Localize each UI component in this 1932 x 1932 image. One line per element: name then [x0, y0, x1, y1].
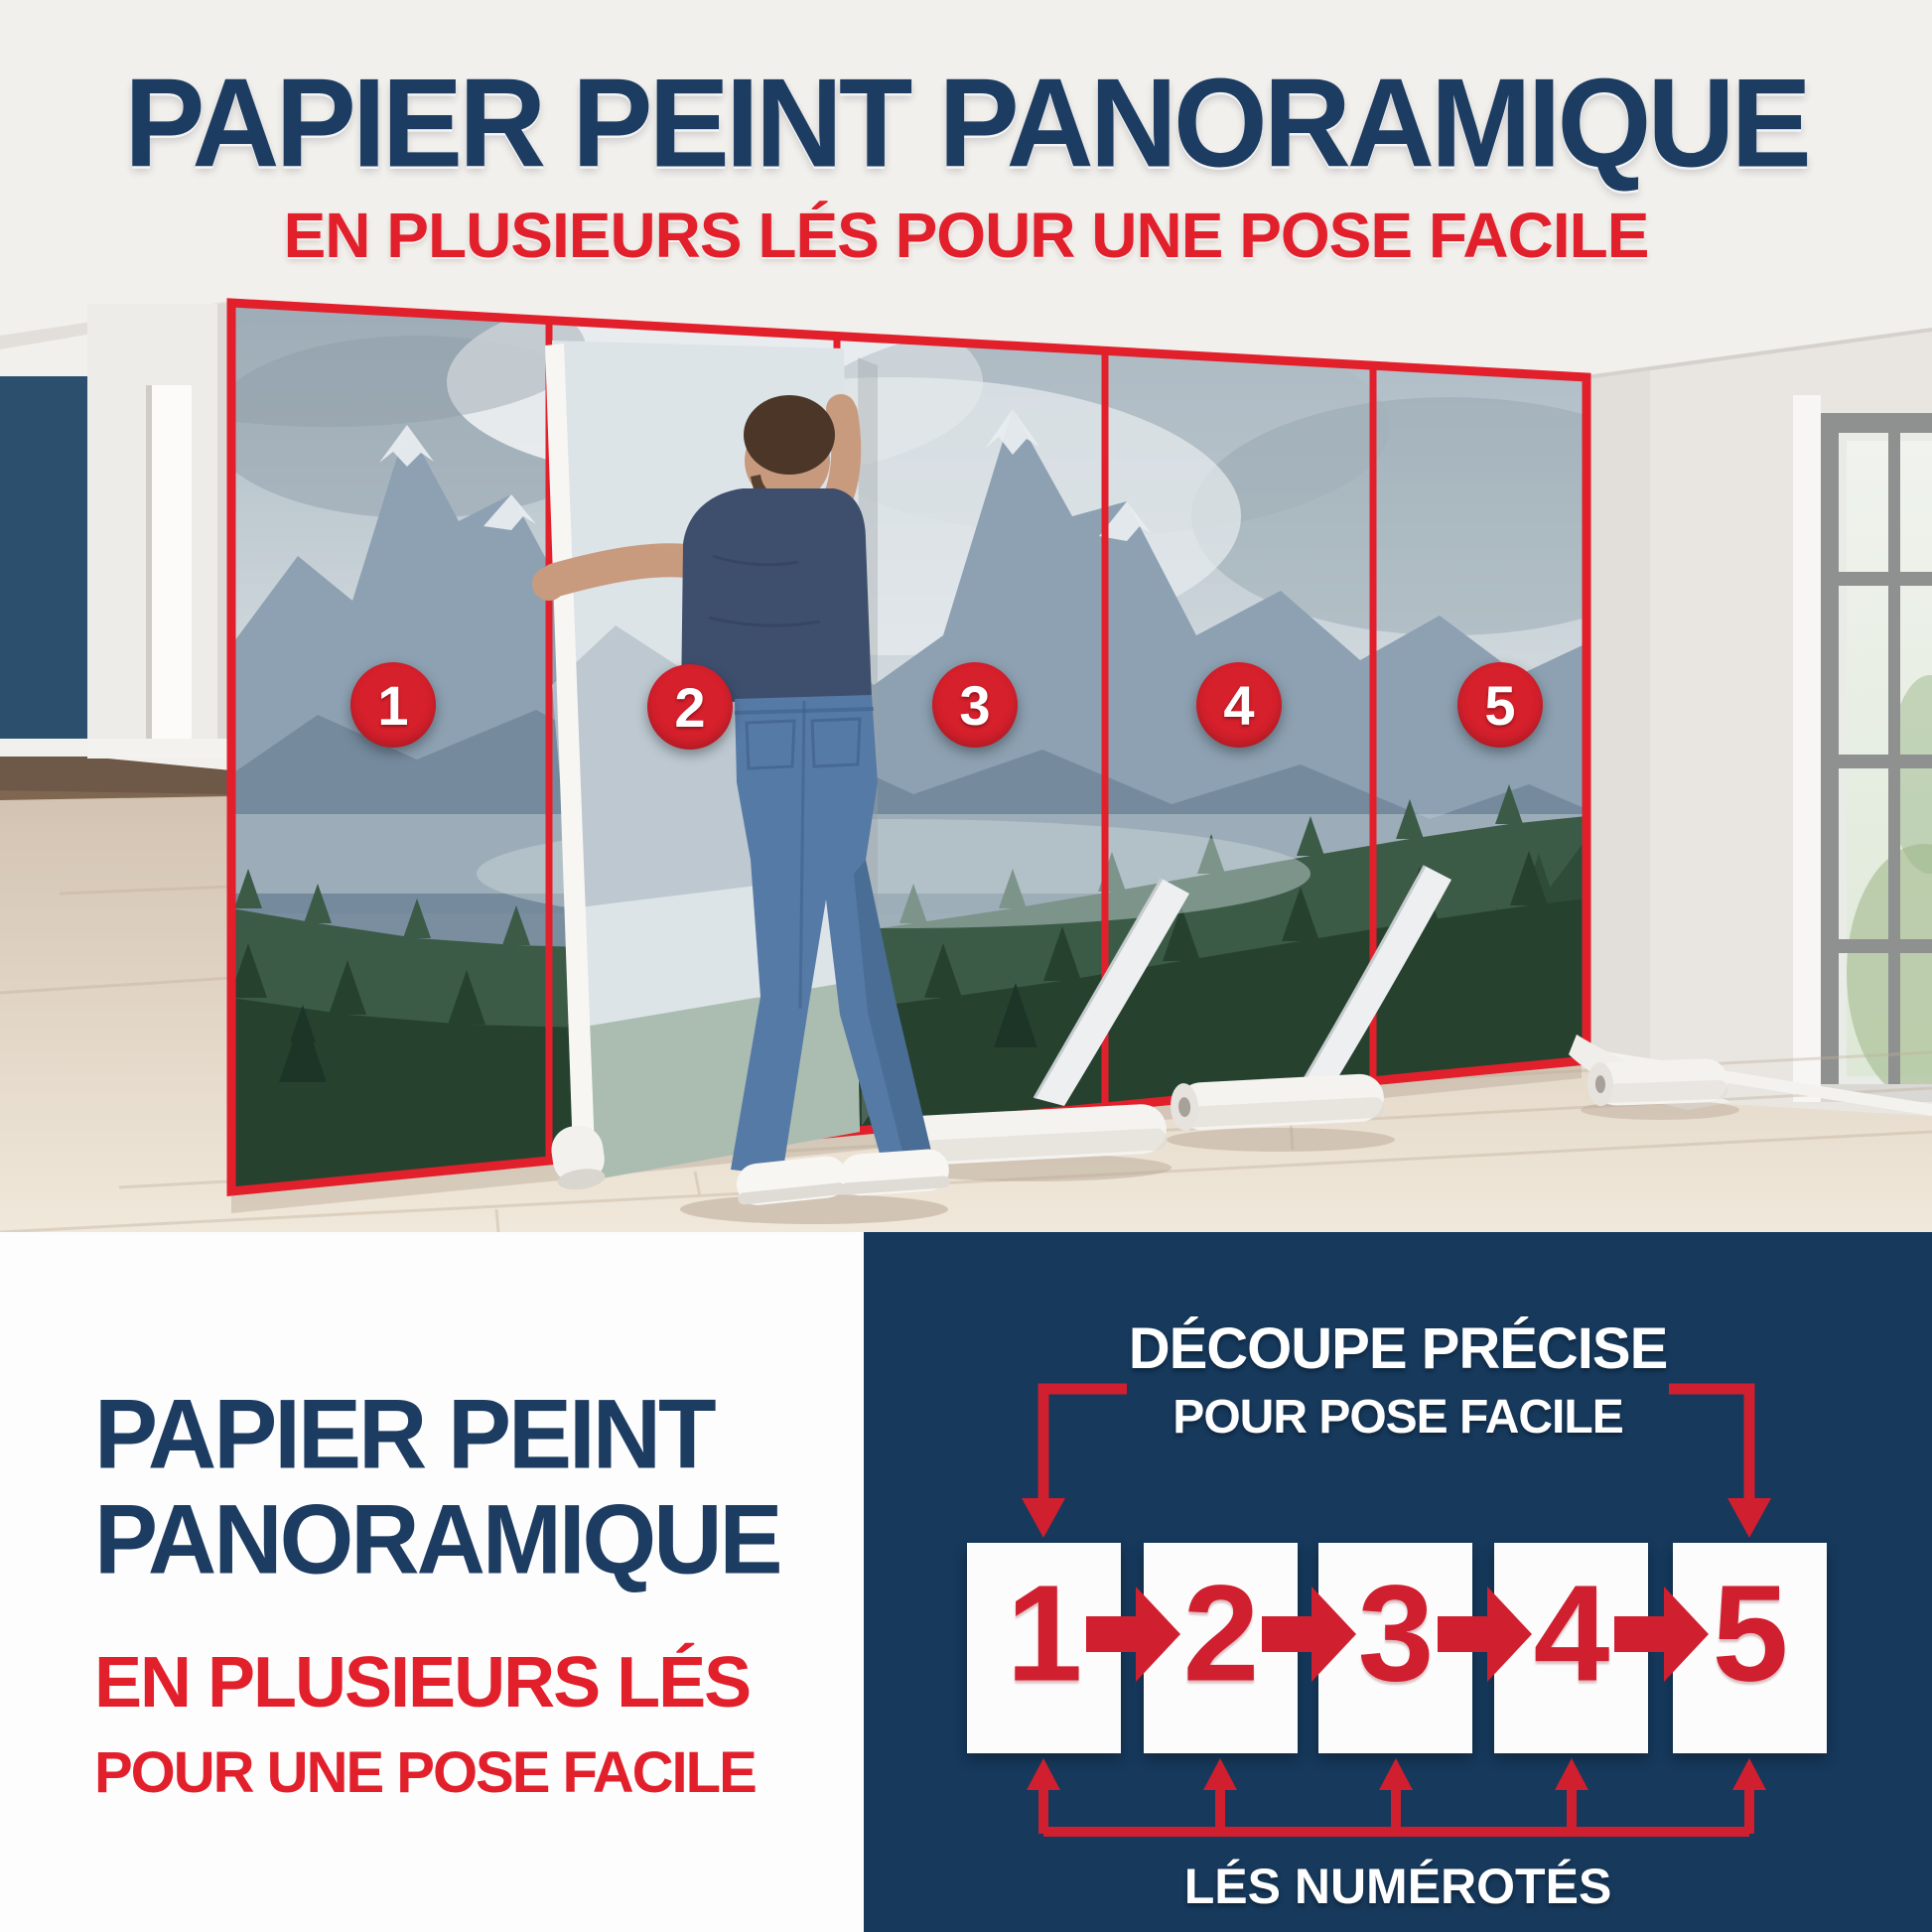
photo-section: PAPIER PEINT PANORAMIQUE EN PLUSIEURS LÉ… — [0, 0, 1932, 1232]
info-subtitle-line1: EN PLUSIEURS LÉS — [94, 1642, 864, 1724]
left-hallway — [0, 301, 231, 804]
strip-number-1: 1 — [1007, 1556, 1083, 1714]
panel-marker-4: 4 — [1196, 662, 1282, 748]
strip-number-4: 4 — [1534, 1556, 1610, 1714]
panel-marker-5: 5 — [1457, 662, 1543, 748]
diagram-heading-line2: POUR POSE FACILE — [864, 1390, 1932, 1445]
diagram-heading-line1: DÉCOUPE PRÉCISE — [864, 1315, 1932, 1382]
poster-subtitle: EN PLUSIEURS LÉS POUR UNE POSE FACILE — [0, 199, 1932, 272]
strip-number-2: 2 — [1183, 1556, 1260, 1714]
door-opening — [146, 385, 192, 757]
bottom-row: PAPIER PEINT PANORAMIQUE EN PLUSIEURS LÉ… — [0, 1232, 1932, 1932]
window — [1793, 395, 1932, 1102]
wallpaper-poster: PAPIER PEINT PANORAMIQUE EN PLUSIEURS LÉ… — [0, 0, 1932, 1932]
strip-number-5: 5 — [1713, 1556, 1789, 1714]
strip-number-3: 3 — [1358, 1556, 1435, 1714]
navy-accent-wall — [0, 376, 87, 745]
headline-block: PAPIER PEINT PANORAMIQUE EN PLUSIEURS LÉ… — [0, 62, 1932, 272]
info-subtitle-line2: POUR UNE POSE FACILE — [94, 1739, 864, 1806]
panel-marker-3: 3 — [932, 662, 1018, 748]
poster-title: PAPIER PEINT PANORAMIQUE — [0, 60, 1932, 188]
info-title-line1: PAPIER PEINT — [94, 1381, 864, 1489]
strips-diagram-panel: DÉCOUPE PRÉCISE POUR POSE FACILE — [864, 1232, 1932, 1932]
info-panel: PAPIER PEINT PANORAMIQUE EN PLUSIEURS LÉ… — [0, 1232, 864, 1932]
panel-marker-2: 2 — [647, 664, 733, 750]
panel-marker-1: 1 — [350, 662, 436, 748]
info-title-line2: PANORAMIQUE — [94, 1486, 864, 1594]
diagram-heading: DÉCOUPE PRÉCISE POUR POSE FACILE — [864, 1315, 1932, 1445]
